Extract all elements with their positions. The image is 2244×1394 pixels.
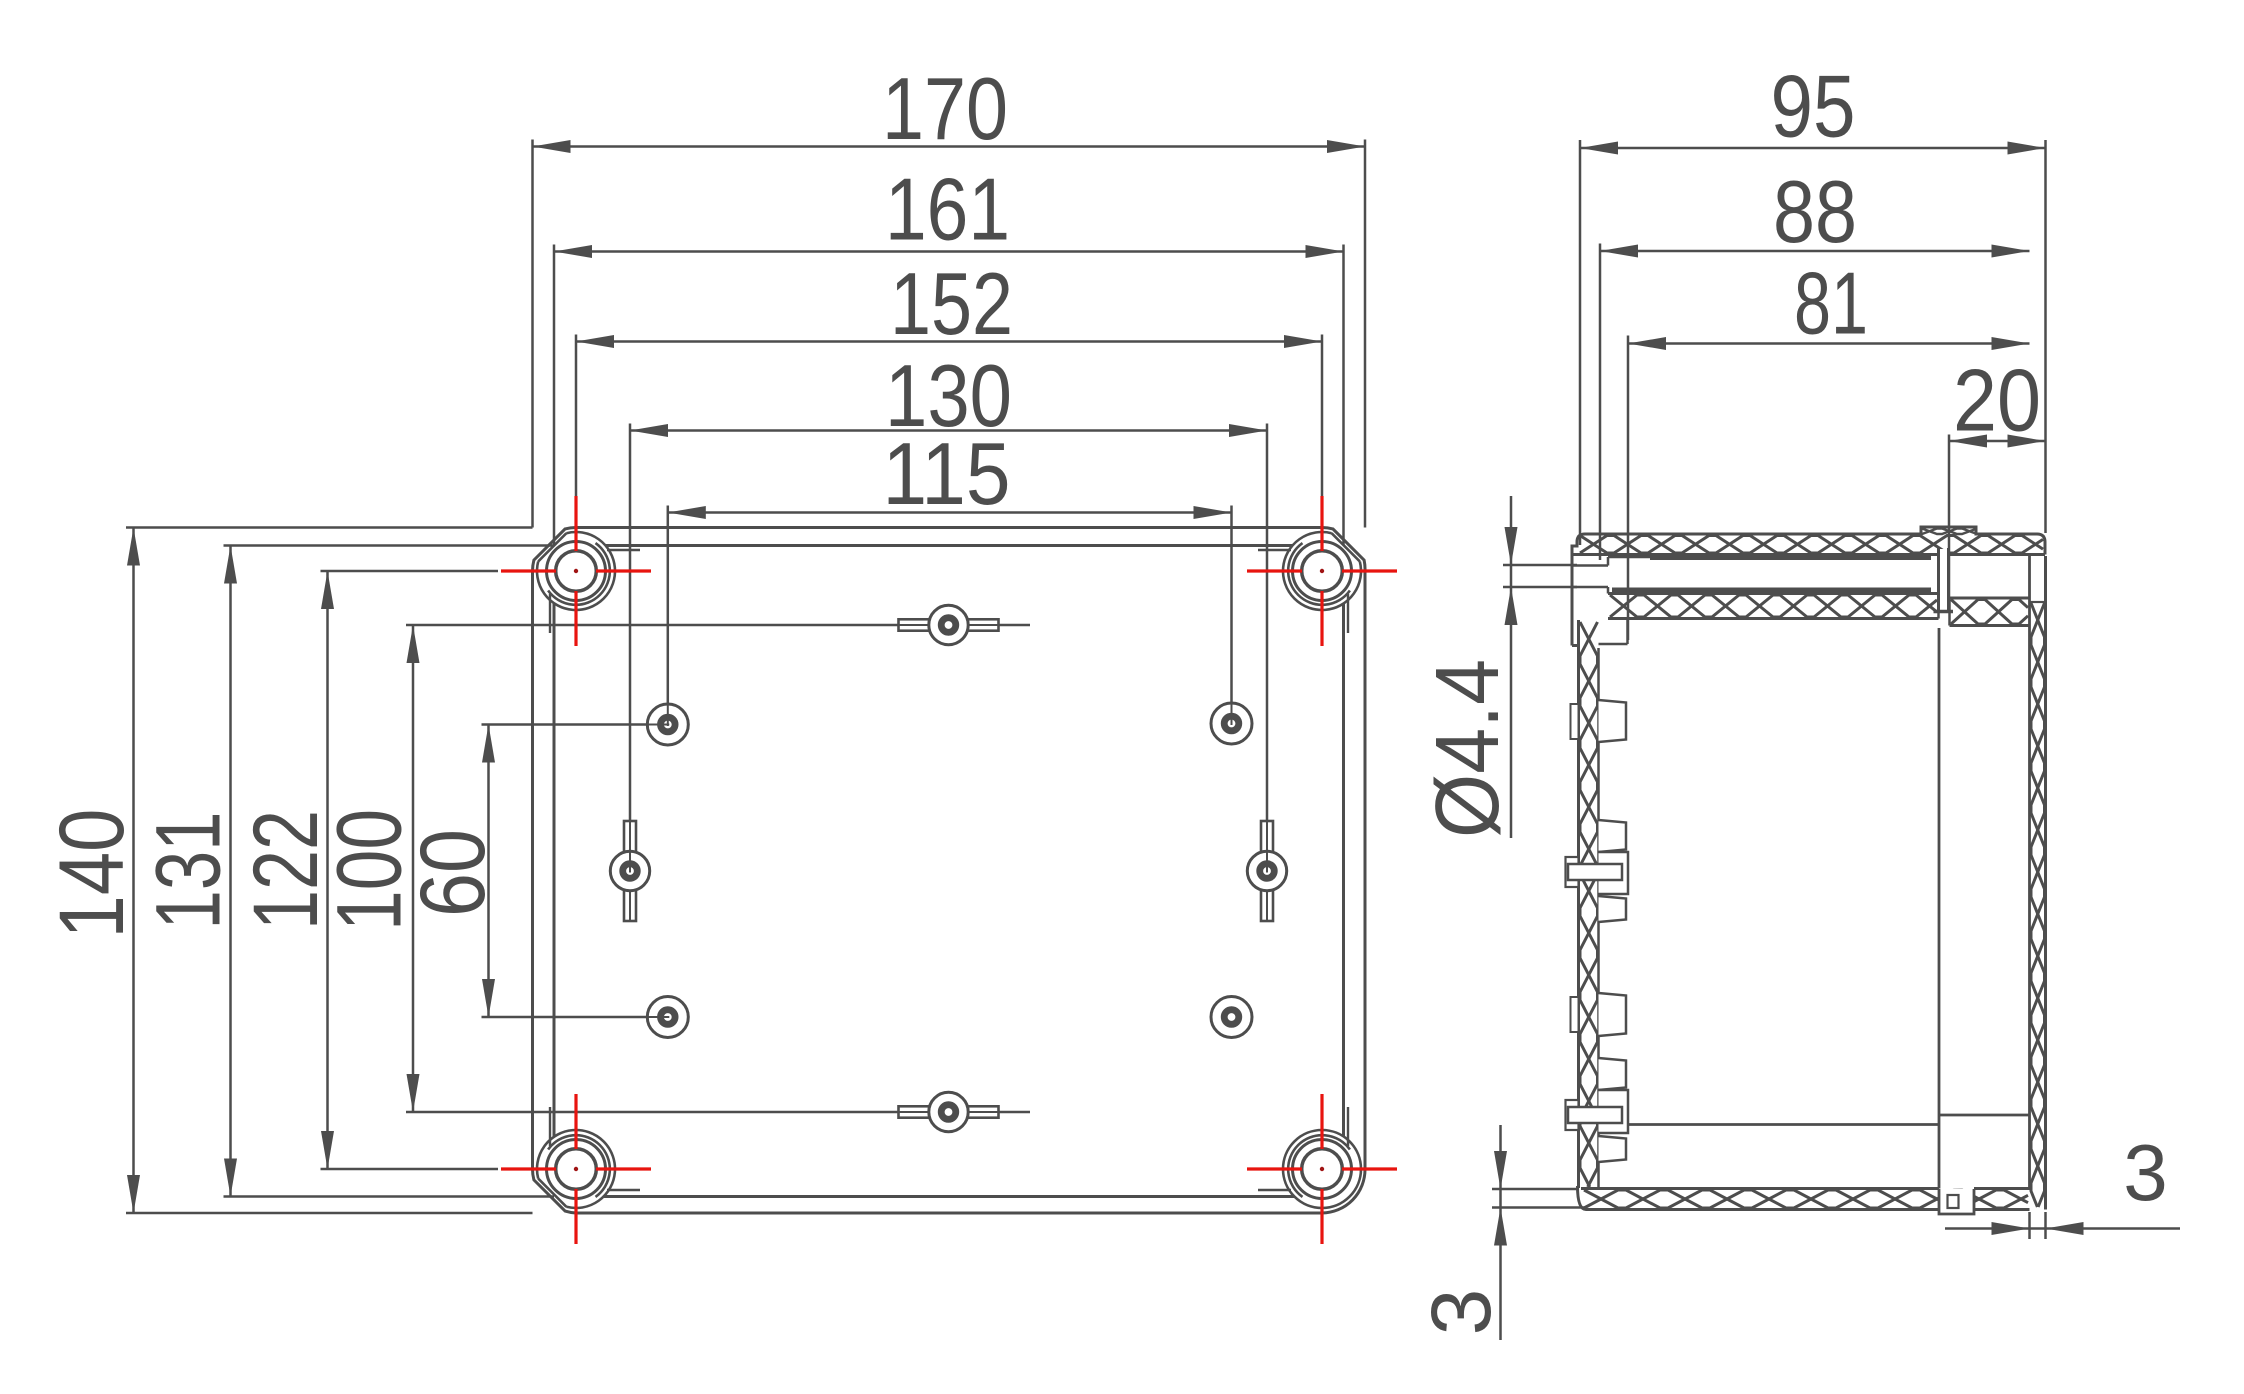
svg-text:95: 95 xyxy=(1771,57,1856,156)
svg-text:161: 161 xyxy=(885,160,1010,259)
svg-text:81: 81 xyxy=(1794,254,1868,353)
svg-text:3: 3 xyxy=(1414,1289,1508,1336)
svg-text:88: 88 xyxy=(1773,162,1857,261)
svg-text:131: 131 xyxy=(138,812,240,930)
svg-text:20: 20 xyxy=(1953,351,2041,450)
svg-text:140: 140 xyxy=(41,809,143,939)
svg-text:152: 152 xyxy=(890,254,1013,353)
svg-text:3: 3 xyxy=(2123,1128,2168,1217)
svg-text:60: 60 xyxy=(402,829,504,917)
svg-text:115: 115 xyxy=(883,424,1011,523)
svg-text:Ø4.4: Ø4.4 xyxy=(1418,659,1518,838)
svg-text:170: 170 xyxy=(882,59,1008,158)
